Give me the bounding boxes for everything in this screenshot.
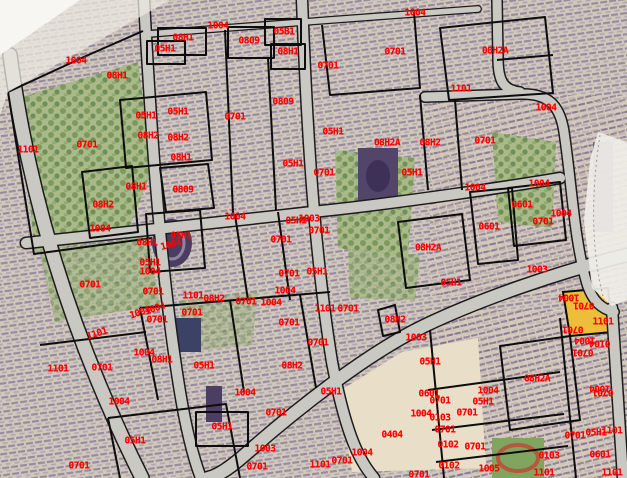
map-canvas[interactable]: 100408H11101070108H105H11004080905B108H1… (0, 0, 627, 478)
aerial-imagery (0, 0, 627, 478)
